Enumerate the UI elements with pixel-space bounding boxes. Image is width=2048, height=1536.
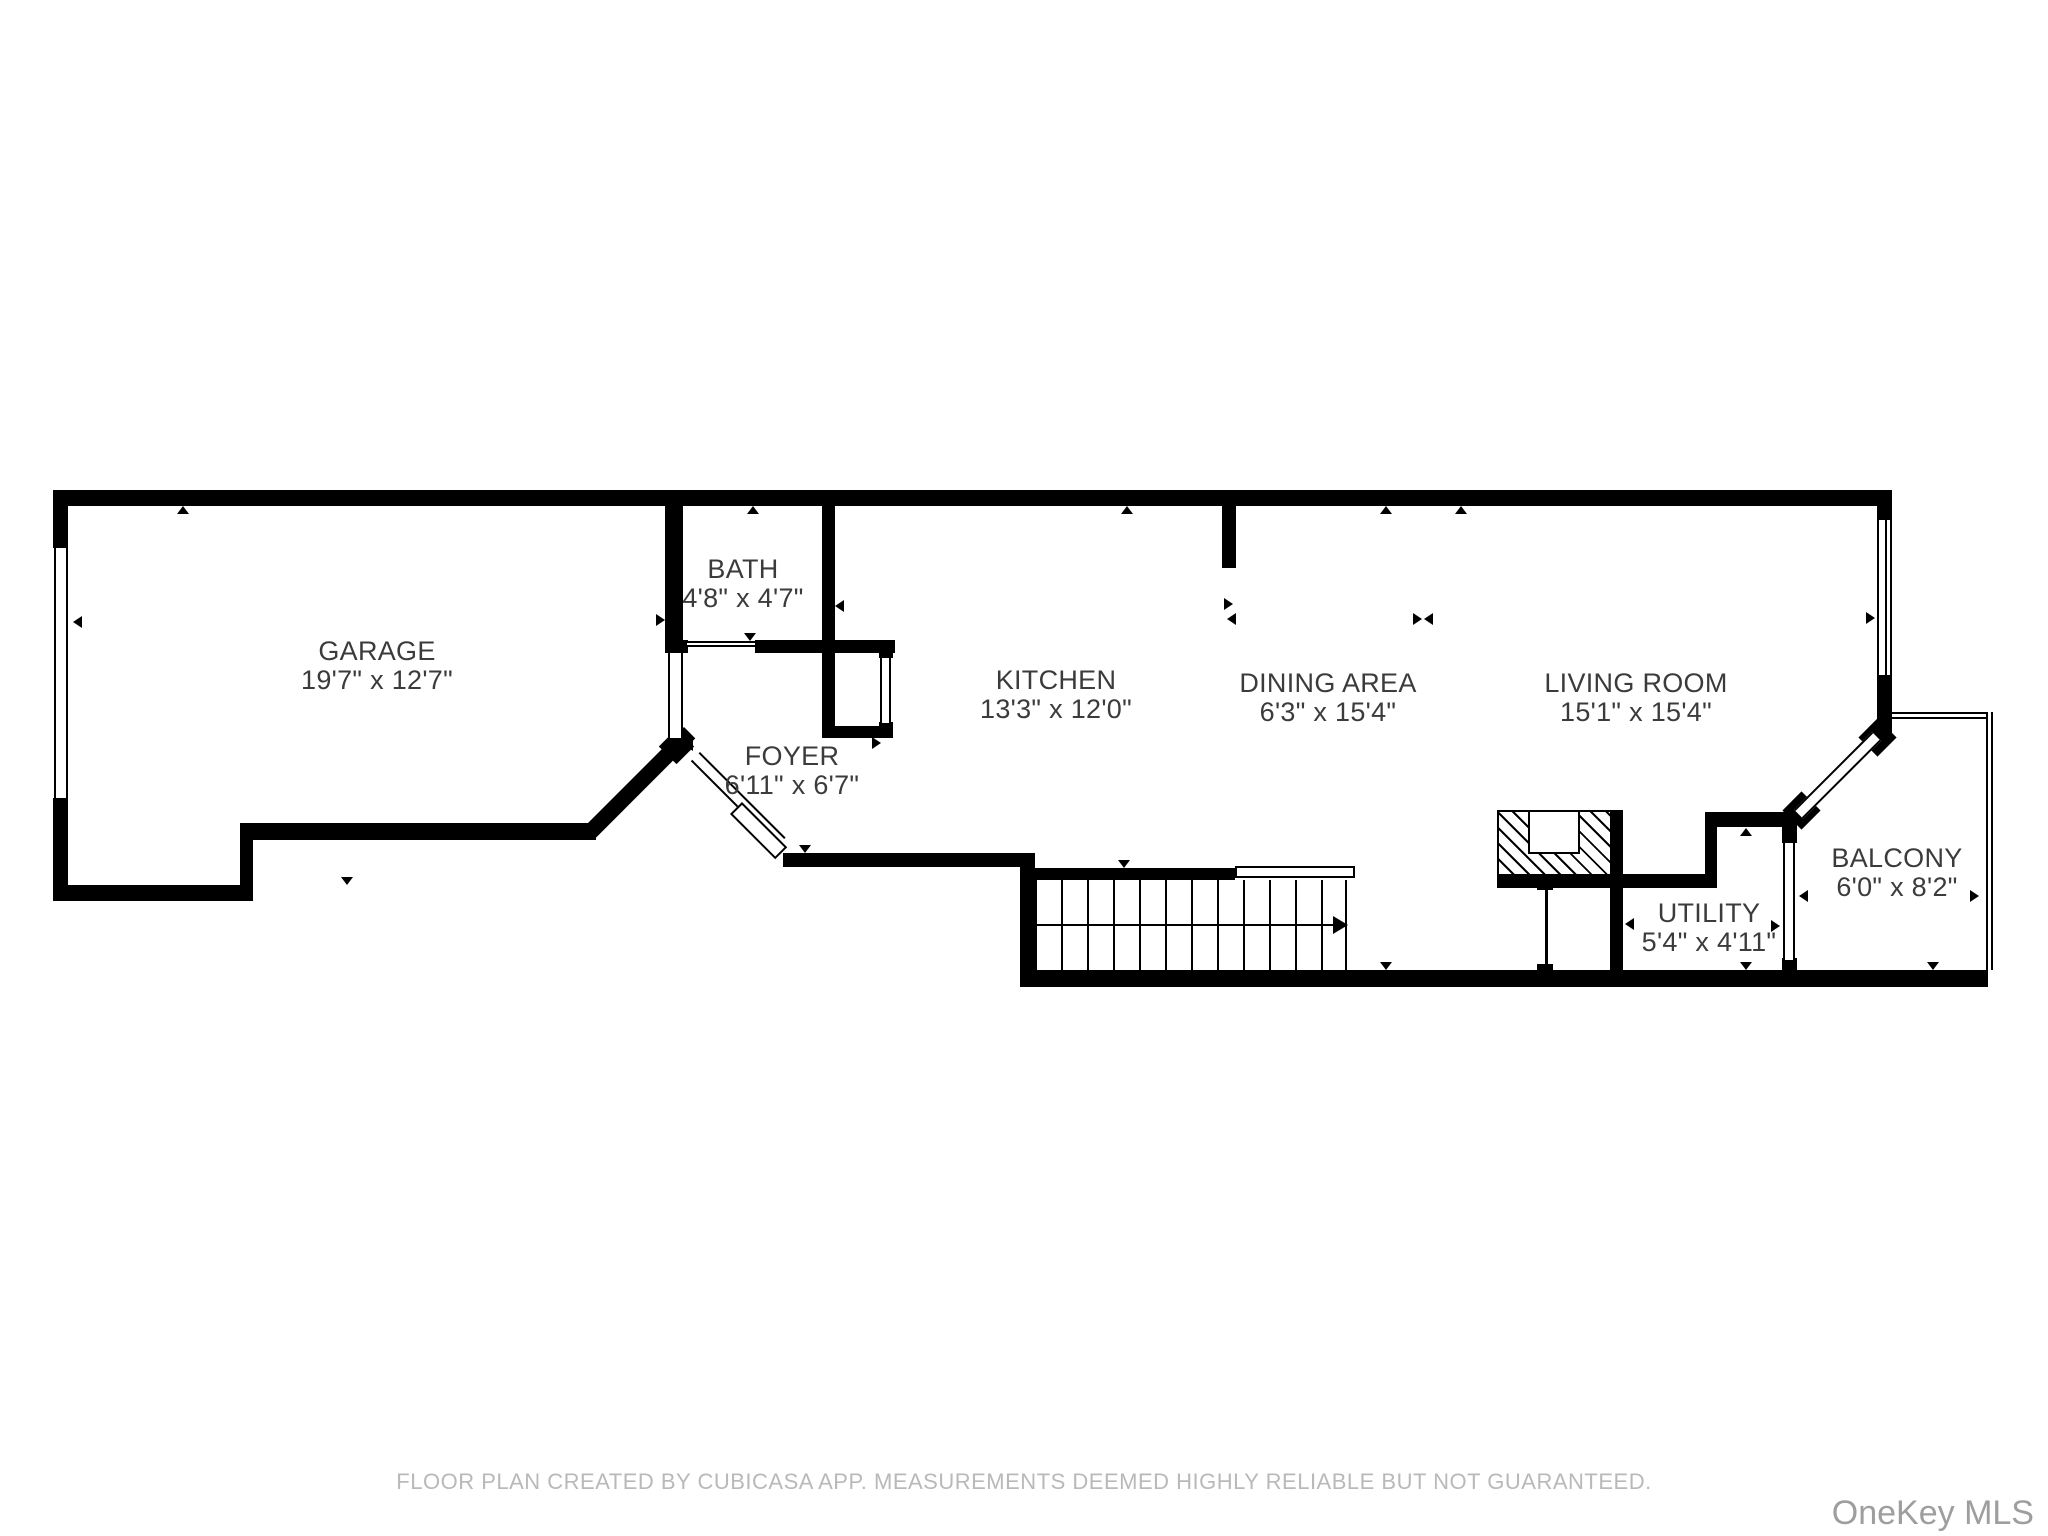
room-name: FOYER xyxy=(632,742,952,771)
wall-under-fireplace-tab-top xyxy=(1537,881,1553,890)
room-dimensions: 5'4" x 4'11" xyxy=(1549,928,1869,957)
room-name: GARAGE xyxy=(217,637,537,666)
balcony-edge-right xyxy=(1986,712,1993,970)
room-dimensions: 6'0" x 8'2" xyxy=(1737,873,2048,902)
wall-kitchen-dining-stub xyxy=(1222,505,1236,568)
dimension-arrow-icon xyxy=(1413,613,1422,625)
dimension-arrow-icon xyxy=(656,614,665,626)
dimension-arrow-icon xyxy=(1740,828,1752,836)
room-dimensions: 6'11" x 6'7" xyxy=(632,771,952,800)
balcony-door-opening xyxy=(1794,732,1881,819)
wall-stairs-top xyxy=(1033,868,1235,880)
garage-foyer-opening xyxy=(668,653,683,738)
room-name: BATH xyxy=(583,555,903,584)
room-label-utility: UTILITY 5'4" x 4'11" xyxy=(1549,899,1869,957)
dimension-arrow-icon xyxy=(744,633,756,641)
room-name: DINING AREA xyxy=(1168,669,1488,698)
dimension-arrow-icon xyxy=(1380,506,1392,514)
room-dimensions: 6'3" x 15'4" xyxy=(1168,698,1488,727)
closet-door-opening xyxy=(880,658,891,723)
dimension-arrow-icon xyxy=(1866,612,1875,624)
dimension-arrow-icon xyxy=(1455,506,1467,514)
wall-closet-right-bottom xyxy=(879,722,893,737)
wall-top-right-corner xyxy=(1877,490,1892,519)
room-dimensions: 4'8" x 4'7" xyxy=(583,584,903,613)
wall-foyer-bottom xyxy=(783,853,1035,867)
disclaimer-text: FLOOR PLAN CREATED BY CUBICASA APP. MEAS… xyxy=(0,1469,2048,1495)
dimension-arrow-icon xyxy=(177,506,189,514)
fireplace-firebox xyxy=(1528,810,1580,854)
room-name: BALCONY xyxy=(1737,844,2048,873)
dimension-arrow-icon xyxy=(799,845,811,853)
wall-bottom xyxy=(1020,970,1988,987)
balcony-edge-top xyxy=(1892,712,1993,719)
dimension-arrow-icon xyxy=(341,877,353,885)
dimension-arrow-icon xyxy=(1424,613,1433,625)
wall-utility-top xyxy=(1705,812,1797,827)
floor-plan-canvas: GARAGE 19'7" x 12'7" BATH 4'8" x 4'7" FO… xyxy=(0,0,2048,1536)
room-name: LIVING ROOM xyxy=(1476,669,1796,698)
room-label-garage: GARAGE 19'7" x 12'7" xyxy=(217,637,537,695)
room-label-foyer: FOYER 6'11" x 6'7" xyxy=(632,742,952,800)
dimension-arrow-icon xyxy=(1118,860,1130,868)
dimension-arrow-icon xyxy=(1224,598,1233,610)
room-label-balcony: BALCONY 6'0" x 8'2" xyxy=(1737,844,2048,902)
dimension-arrow-icon xyxy=(747,506,759,514)
dimension-arrow-icon xyxy=(1927,962,1939,970)
stairs-direction-arrow-icon xyxy=(1333,916,1348,934)
room-dimensions: 15'1" x 15'4" xyxy=(1476,698,1796,727)
window-mullion xyxy=(1885,520,1887,675)
wall-closet-right-top xyxy=(879,640,893,658)
wall-fireplace-bottom xyxy=(1497,874,1717,888)
wall-garage-bottom-low xyxy=(53,885,253,901)
stairs-railing xyxy=(1235,866,1355,878)
dimension-arrow-icon xyxy=(73,616,82,628)
dimension-arrow-icon xyxy=(1380,962,1392,970)
staircase-treads xyxy=(1035,880,1347,972)
room-name: UTILITY xyxy=(1549,899,1869,928)
wall-utility-door-jamb-top xyxy=(1782,827,1797,843)
living-room-window-icon xyxy=(1877,518,1892,677)
room-label-dining: DINING AREA 6'3" x 15'4" xyxy=(1168,669,1488,727)
wall-bath-right xyxy=(822,505,835,738)
dimension-arrow-icon xyxy=(1121,506,1133,514)
dimension-arrow-icon xyxy=(1227,613,1236,625)
stairs-direction-line xyxy=(1035,924,1335,926)
room-label-bath: BATH 4'8" x 4'7" xyxy=(583,555,903,613)
wall-top xyxy=(53,490,1892,506)
wall-under-fireplace-tab-bottom xyxy=(1537,964,1553,973)
room-label-living: LIVING ROOM 15'1" x 15'4" xyxy=(1476,669,1796,727)
wall-under-fireplace-door-line xyxy=(1545,888,1548,968)
wall-garage-left-top xyxy=(53,490,68,548)
dimension-arrow-icon xyxy=(1740,962,1752,970)
room-dimensions: 19'7" x 12'7" xyxy=(217,666,537,695)
wall-garage-bottom-high xyxy=(240,823,596,840)
bath-door-opening xyxy=(687,641,755,647)
garage-door-icon xyxy=(54,548,68,798)
mls-watermark: OneKey MLS xyxy=(1832,1494,2034,1533)
